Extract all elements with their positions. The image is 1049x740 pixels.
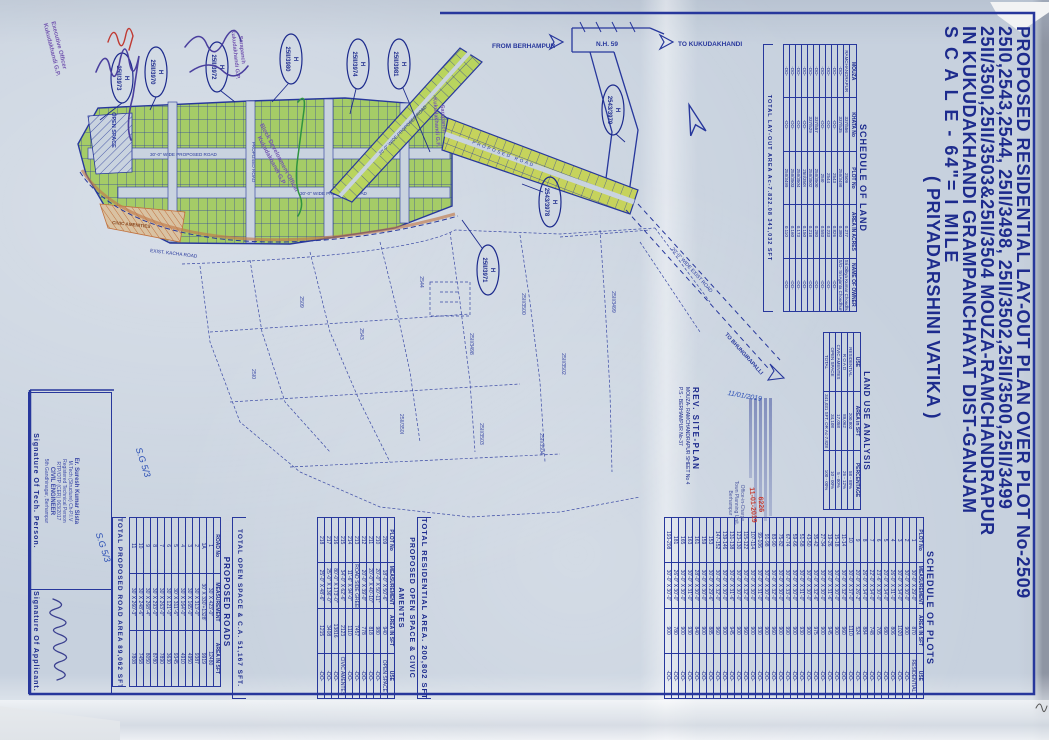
column-header: MEASUREMENT <box>214 574 221 630</box>
column-header: MEASUREMENT <box>917 563 924 608</box>
table-row: 75-8230'-0" X 30'-0"900-DO- <box>777 518 784 699</box>
applicant-cell: Signature Of Applicant. <box>29 589 111 693</box>
table-row: -DO--DO-25II/350I0.150-DO- <box>802 45 808 312</box>
table-row: 15330'-0" X 29'-6"885-DO- <box>707 518 714 699</box>
table-title: LAND USE ANALYSIS <box>861 332 872 510</box>
kacha-road-label: EXIST. KACHA ROAD <box>150 248 198 260</box>
column-header: AREA IN ACRES <box>850 205 857 258</box>
column-header: PLOT No <box>917 518 924 563</box>
column-header: NAME OF OWNER <box>850 258 857 311</box>
proposed-road-label-3: PROPOSED ROAD <box>251 142 256 183</box>
table-row: 16128'-0" X 30'-0"840-DO- <box>693 518 700 699</box>
illegible-certificate-text <box>749 398 752 478</box>
applicant-handwritten-signature <box>41 591 81 691</box>
proposed-road-label-1: 30'-0" WIDE PROPOSED ROAD <box>150 152 218 157</box>
svg-text:25II/3500: 25II/3500 <box>520 293 526 315</box>
table-row: 11-1430'-0" X 32'-0"960-DO- <box>840 518 847 699</box>
table-row: 1030' X 248'-6"7458 <box>137 518 144 687</box>
svg-text:25II/3498: 25II/3498 <box>468 333 474 355</box>
table-row: 15-1830'-0" X 30'-0"900-DO- <box>833 518 840 699</box>
tech-person-cell: Er. Suresh Kumar Sista M.Tech (Structure… <box>29 393 111 589</box>
table-row: 230'-0" X 30'-0"900-DO- <box>903 518 910 699</box>
table-row: OPEN SPACE34,10810 - 00% <box>830 333 836 510</box>
svg-text:25II/3504: 25II/3504 <box>538 433 544 455</box>
table-row: TOTAL341,031 SFT. OR Ac-7.828100 - 00% <box>824 333 830 510</box>
svg-text:25II/3981: 25II/3981 <box>392 51 398 77</box>
table-row: 830' X 293'-0"8780 <box>151 518 158 687</box>
table-row: 730' X 263'-0"7890 <box>158 518 165 687</box>
table-row: 91-9830'-0" X 30'-0"900-DO- <box>763 518 770 699</box>
title-line-3: 25II/350I,25II/3503&25II/3504 MOUZA-RAMC… <box>978 26 996 688</box>
land-use-analysis-table: LAND USE ANALYSIS USEAREA in SFTPERCENTA… <box>793 332 872 510</box>
open-space-label: OPEN SPACE <box>110 112 116 148</box>
open-space-area <box>88 113 132 174</box>
table-title: PROPOSED OPEN SPACE & CIVIC AMENTES <box>395 517 417 699</box>
table-row: 27-3430'-0" X 30'-0"900-DO- <box>819 518 826 699</box>
svg-text:H: H <box>359 62 365 66</box>
table-body: PLOT NoMEASUREMENTAREA IN SFTUSE20918'-0… <box>246 517 395 699</box>
table-row: 530' X 311'-6"9345 <box>172 518 179 687</box>
svg-text:H: H <box>400 62 406 66</box>
table-row: 35-4230'-0" X 32'-6"975-DO- <box>812 518 819 699</box>
svg-text:2544: 2544 <box>418 276 424 288</box>
title-line-4: IN KUKUDAKHANDI GRAMPANCHAYAT DIST-GANJA… <box>960 26 978 688</box>
table-row: 630' X 121'-0"3630 <box>165 518 172 687</box>
callout: H25II/3970 <box>145 47 167 110</box>
column-header: PLOT No <box>388 518 395 563</box>
column-header: USE <box>917 653 924 698</box>
column-header: MEASUREMENT <box>388 563 395 608</box>
svg-text:H: H <box>157 70 163 74</box>
table-row: 16330'-0" X 31'-0"930-DO- <box>686 518 693 699</box>
table-row: 123-13030'-0" X 30'-0"900-DO- <box>735 518 742 699</box>
table-title: SCHEDULE OF PLOTS <box>924 517 935 699</box>
table-row: 213ROAD SIDE GREENERY7457-DO- <box>353 518 360 699</box>
table-row: 21825'-0" X 48'-6"1215-DO- <box>318 518 325 699</box>
table-row: 21680'-0" X 173'-0"13816-DO- <box>332 518 339 699</box>
table-row: 21534'-0" X 62'-6"2123CIVIC AMENTES <box>339 518 346 699</box>
rev-site-plan-heading: REV. SITE-PLAN <box>690 387 700 487</box>
office-in-charge-signature: Office-in-Charge Town Planning Unit, Ber… <box>727 481 745 525</box>
column-header: AREA in SFT <box>854 392 861 451</box>
table-row: -DO--DO-25440.233-DO- <box>826 45 832 312</box>
approval-memo-block: 6226 11-01-2019 11/01/2019 Office-in-Cha… <box>706 394 772 528</box>
table-row: 20918'-0" X 50'-6"940OPEN SPACE <box>381 518 388 699</box>
table-row: 193-20830'-0" X 30'-0"900-DO- <box>665 518 672 699</box>
illegible-certificate-text <box>769 398 772 516</box>
tech-person-stamp: Er. Suresh Kumar Sista M.Tech (Structure… <box>41 393 79 589</box>
svg-text:25I0: 25I0 <box>250 369 256 379</box>
table-row: 430' X 164'-0"4910 <box>179 518 186 687</box>
signature-box: Er. Suresh Kumar Sista M.Tech (Structure… <box>28 392 112 694</box>
table-row: 230' X 313'-0"9387 <box>193 518 200 687</box>
svg-text:25II/3970: 25II/3970 <box>149 59 155 85</box>
callout: H25II/3980 <box>272 34 302 102</box>
table-row: R O A D89,06226 - 12% <box>842 333 848 510</box>
table-row: 83-9030'-0" X 32'-0"960-DO- <box>770 518 777 699</box>
to-bhungirapalli-label: TO BHUNGIRAPALLI <box>723 332 764 377</box>
table-row: 1130' X 260'-3"7808 <box>130 518 137 687</box>
svg-text:2543/3978: 2543/3978 <box>543 188 549 217</box>
column-header: USE <box>854 333 861 392</box>
table-row: 21120'-0" X 40'-10"818-DO- <box>367 518 374 699</box>
svg-text:25II/3972: 25II/3972 <box>210 54 216 80</box>
svg-text:2543/3979: 2543/3979 <box>606 96 612 125</box>
table-row: 99-10630'-0" X 31'-0"930-DO- <box>756 518 763 699</box>
column-header: AREA IN SFT <box>388 608 395 653</box>
svg-text:25II/3980: 25II/3980 <box>284 46 290 72</box>
svg-text:25II/3503: 25II/3503 <box>478 423 484 445</box>
total-road-area: TOTAL PROPOSED ROAD AREA 89,062 SFT. <box>112 517 126 687</box>
from-berhampur-label: FROM BERHAMPUR <box>492 43 555 50</box>
table-row: -DO-337/55725II/35000.280-DO- <box>814 45 820 312</box>
svg-text:25II/3502: 25II/3502 <box>560 353 566 375</box>
exist-road-label: 20'-0" WIDE EXIST ROAD <box>670 247 714 295</box>
total-residential-area: TOTAL RESIDENTIAL AREA. 200,802 SFT. <box>417 517 431 699</box>
table-row: 67-7430'-0" X 33'-0"990-DO- <box>784 518 791 699</box>
svg-text:25II/3971: 25II/3971 <box>481 257 487 283</box>
svg-text:25II/3499: 25II/3499 <box>610 291 616 313</box>
svg-text:H: H <box>123 76 129 80</box>
red-memo-stamp: 6226 11-01-2019 <box>747 486 765 522</box>
title-block: PROPOSED RESIDENTIAL LAY-OUT PLAN OVER P… <box>922 26 1032 688</box>
table-row: 131-13830'-0" X 31'-6"945-DO- <box>728 518 735 699</box>
schedule-of-land-table: SCHEDULE OF LAND MOUZAKHATA NoPLOT NoARE… <box>763 44 868 312</box>
total-open-space: TOTAL OPEN SPACE & C.A. 51,167 SFT. <box>232 517 246 699</box>
column-header: AREA IN SFT <box>917 608 924 653</box>
table-row: 15930'-0" X 30'-0"900-DO- <box>700 518 707 699</box>
direction-arrow-se <box>768 364 784 380</box>
table-row: 59-6630'-0" X 30'-0"900-DO- <box>791 518 798 699</box>
column-header: KHATA No <box>850 98 857 151</box>
column-header: MOUZA <box>850 45 857 98</box>
table-row: 623'-6" X 30'-0"705-DO- <box>875 518 882 699</box>
table-row: -DO--DO-25II/35040.173-DO- <box>796 45 802 312</box>
open-space-table: PROPOSED OPEN SPACE & CIVIC AMENTES PLOT… <box>232 517 417 699</box>
schedule-of-plots-table: SCHEDULE OF PLOTS PLOT NoMEASUREMENTAREA… <box>417 517 935 699</box>
svg-text:H: H <box>551 200 557 204</box>
title-line-2: 25I0,2543,2544, 25II/3498, 25II/3502,25I… <box>996 26 1014 688</box>
table-row: 920'-0" X 26'-2"524-DO- <box>854 518 861 699</box>
svg-text:2543: 2543 <box>358 328 364 340</box>
table-row: 107-11430'-0" X 30'-0"900-DO- <box>749 518 756 699</box>
table-row: 115-12230'-0" X 32'-0"960-DO- <box>742 518 749 699</box>
table-row: 130' X 423'-0"12480 <box>207 518 214 687</box>
rev-site-plan-note: REV. SITE-PLAN MOUZA- RAMCHANDRAPUR SHEE… <box>670 387 700 487</box>
table-row: -DO--DO-25430.826-DO- <box>832 45 838 312</box>
to-kukudakhandi-label: TO KUKUDAKHANDI <box>678 41 742 48</box>
total-layout-area: TOTAL LAY-OUT AREA Ac-7.822.08 341,032 S… <box>763 44 773 312</box>
column-header: PLOT No <box>850 151 857 204</box>
table-row: 16530'-0" X 30'-0"900-DO- <box>679 518 686 699</box>
red-signature <box>108 28 133 50</box>
proposed-roads-table: PROPOSED ROADS ROAD NoMEASUREMENTAREA IN… <box>112 517 232 687</box>
sg-handwritten-note-2: S.G 5/3 <box>134 446 153 478</box>
table-row: 43-5030'-0" X 30'-0"900-DO- <box>805 518 812 699</box>
table-row: 130'-0" X 29'-0"870RESIDENTIAL <box>910 518 917 699</box>
table-row: 330'-0" X 34'-0"1020-DO- <box>896 518 903 699</box>
table-body: MOUZAKHATA NoPLOT NoAREA IN ACRESNAME OF… <box>773 44 857 312</box>
table-row: RESIDENTIAL200,80258 - 88% <box>848 333 854 510</box>
table-row: -DO-337/52925II/35020.218-DO- <box>808 45 814 312</box>
title-scale-line: S C A L E - 64"= I MILE <box>942 26 960 688</box>
title-line-1: PROPOSED RESIDENTIAL LAY-OUT PLAN OVER P… <box>1014 26 1032 688</box>
svg-text:2509: 2509 <box>298 296 304 308</box>
svg-text:25II/350I: 25II/350I <box>398 414 404 434</box>
direction-arrow-east <box>660 35 673 49</box>
table-body: ROAD NoMEASUREMENTAREA IN SFT130' X 423'… <box>126 517 221 687</box>
table-row: 147-15230'-0" X 32'-0"960-DO- <box>714 518 721 699</box>
north-arrow-icon <box>681 102 705 135</box>
svg-text:25II/3974: 25II/3974 <box>351 51 357 77</box>
table-row: 21220'-0" X 39'-0"778-DO- <box>360 518 367 699</box>
table-title: PROPOSED ROADS <box>221 517 232 687</box>
column-header: ROAD No <box>214 518 221 574</box>
callout: H25II/3972 <box>206 42 235 102</box>
proposed-road-band <box>324 99 333 237</box>
pencil-mark <box>1036 704 1047 712</box>
table-row: RAMCHANDRAPUR337/55625090.277Sri Dibya K… <box>844 45 850 312</box>
svg-text:H: H <box>614 108 620 112</box>
table-row: 19-2630'-0" X 31'-6"945-DO- <box>826 518 833 699</box>
table-row: 1030'-0" X 37'-0"1110-DO- <box>847 518 854 699</box>
rev-ps-line: P.S - BERHAMPUR No-37 <box>676 387 683 487</box>
callout: H2543/3979 <box>602 85 625 142</box>
table-row: 930' X 268'-4"8050 <box>144 518 151 687</box>
table-row: 51-5830'-0" X 31'-0"930-DO- <box>798 518 805 699</box>
table-row: 1A30' X 330'+1328'9919 <box>200 518 207 687</box>
tech-signature-label: Signature Of Tech. Person. <box>29 393 41 589</box>
table-row: -DO-337/53525II/34980.380S/O- Sri Ajanta… <box>838 45 844 312</box>
cadastral-plot-numbers: 2509 25I0 2543 2544 25II/3498 25II/3500 … <box>250 276 616 455</box>
column-header: AREA IN SFT <box>214 630 221 686</box>
svg-text:H: H <box>489 268 495 272</box>
table-row: 21411'-6" X 94'-0"1110-DO- <box>346 518 353 699</box>
table-row: 826'-0" X 34'-0"884-DO- <box>861 518 868 699</box>
illegible-certificate-text <box>764 398 767 521</box>
applicant-signature-label: Signature Of Applicant. <box>29 590 41 693</box>
table-row: -DO--DO-25I00.593-DO- <box>820 45 826 312</box>
table-row: 21725'-0" X 136'-0"3408-DO- <box>325 518 332 699</box>
table-row: 520'-0" X 34'-0"680-DO- <box>882 518 889 699</box>
table-row: 330' X 165'-0"4950 <box>186 518 193 687</box>
column-header: PERCENTAGE <box>854 451 861 510</box>
nh59-label: N.H. 59 <box>596 41 618 48</box>
table-row: 139-14630'-0" X 30'-0"900-DO- <box>721 518 728 699</box>
column-header: USE <box>388 653 395 698</box>
table-row: 18126'-0" X 30'-0"780-DO- <box>672 518 679 699</box>
table-body: PLOT NoMEASUREMENTAREA IN SFTUSE130'-0" … <box>431 517 924 699</box>
svg-text:H: H <box>292 57 298 61</box>
table-row: 21020'-0" X 50'-11"980-DO- <box>374 518 381 699</box>
table-row: CIVIC AMENTES17,0585 - 00% <box>836 333 842 510</box>
table-row: -DO--DO-25II/34990.110-DO- <box>784 45 790 312</box>
table-title: SCHEDULE OF LAND <box>857 44 868 312</box>
scanned-layout-plan-sheet: { "title_block": { "line1": "PROPOSED RE… <box>0 2 1049 740</box>
cadastral-boundaries <box>182 228 710 517</box>
rev-mouza-line: MOUZA- RAMCHANDRAPUR SHEET No 4 <box>683 387 690 487</box>
table-row: 722'-0" X 34'-0"748-DO- <box>868 518 875 699</box>
table-row: 426'-0" X 31'-0"806-DO- <box>889 518 896 699</box>
table-row: -DO--DO-25II/35030.160-DO- <box>790 45 796 312</box>
table-body: USEAREA in SFTPERCENTAGERESIDENTIAL200,8… <box>793 332 861 510</box>
